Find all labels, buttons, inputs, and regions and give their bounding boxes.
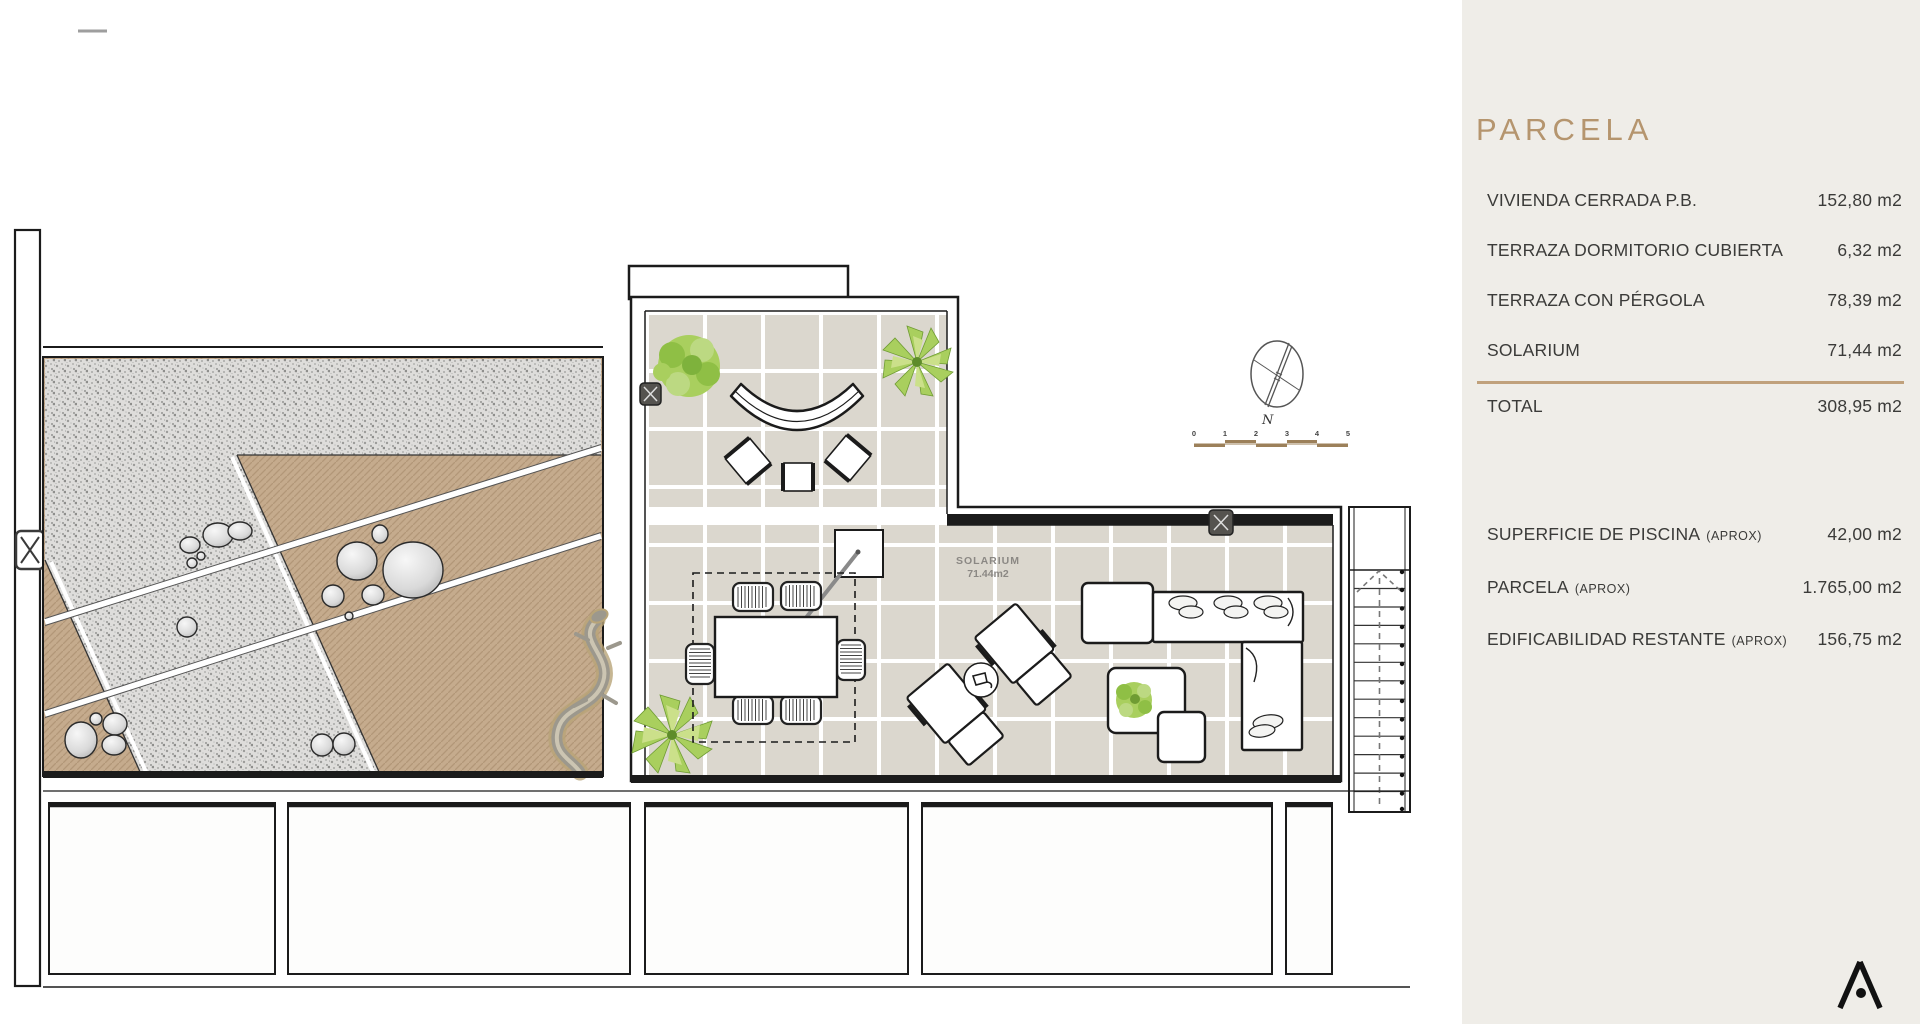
scale-tick-label: 2 [1254,429,1258,438]
dining-chair [781,582,821,610]
scale-tick-label: 4 [1315,429,1320,438]
dining-chair [837,640,865,680]
solarium-area-label: 71.44m2 [967,568,1009,580]
north-label: N [1261,413,1274,428]
panel-title: PARCELA [1476,112,1653,148]
area-row-value: 6,32 m2 [1837,240,1902,261]
aprox-row-label: SUPERFICIE DE PISCINA(APROX) [1487,524,1762,545]
scale-tick-label: 3 [1285,429,1289,438]
side-table-round [964,663,998,697]
aprox-suffix: (APROX) [1732,634,1788,648]
total-row: TOTAL 308,95 m2 [1487,396,1902,417]
pergola-opening [288,803,630,974]
area-row: SOLARIUM 71,44 m2 [1487,340,1902,361]
small-table [1158,712,1205,762]
sofa-plant [1116,682,1152,718]
aprox-row: PARCELA(APROX) 1.765,00 m2 [1487,577,1902,598]
area-row: TERRAZA DORMITORIO CUBIERTA 6,32 m2 [1487,240,1902,261]
aprox-row-label: EDIFICABILIDAD RESTANTE(APROX) [1487,629,1787,650]
floor-plan-drawing: SOLARIUM 71.44m2 [0,0,1462,1024]
brand-logo-icon [1834,952,1890,1014]
scale-bar: 0 1 2 3 4 5 [1192,429,1350,447]
total-label: TOTAL [1487,396,1543,417]
total-value: 308,95 m2 [1818,396,1903,417]
compass-rose: N [1251,341,1303,428]
pergola-band [43,791,1410,987]
parcela-panel: PARCELA VIVIENDA CERRADA P.B. 152,80 m2 … [1462,0,1920,1024]
scale-tick-label: 1 [1223,429,1227,438]
total-divider [1477,381,1904,384]
dining-chair [733,696,773,724]
aprox-row: EDIFICABILIDAD RESTANTE(APROX) 156,75 m2 [1487,629,1902,650]
dining-table [715,617,837,697]
bench-stool-center [783,463,813,491]
dining-chair [733,583,773,611]
area-row: VIVIENDA CERRADA P.B. 152,80 m2 [1487,190,1902,211]
sofa-side-table [1082,583,1153,643]
pergola-opening [49,803,275,974]
scale-tick-label: 5 [1346,429,1350,438]
scale-tick-label: 0 [1192,429,1196,438]
terrace-garden [43,347,620,778]
area-row-label: SOLARIUM [1487,340,1580,361]
aprox-suffix: (APROX) [1706,529,1762,543]
area-row-value: 71,44 m2 [1827,340,1902,361]
pergola-opening [1286,803,1332,974]
roof-bulkhead [629,266,848,299]
solarium-label: SOLARIUM [956,555,1020,567]
aprox-suffix: (APROX) [1575,582,1631,596]
area-row-label: VIVIENDA CERRADA P.B. [1487,190,1697,211]
aprox-row-value: 42,00 m2 [1827,524,1902,545]
aprox-row-value: 1.765,00 m2 [1803,577,1903,598]
pergola-opening [922,803,1272,974]
area-row-label: TERRAZA DORMITORIO CUBIERTA [1487,240,1783,261]
aprox-row-label: PARCELA(APROX) [1487,577,1630,598]
solarium: SOLARIUM 71.44m2 [629,266,1341,783]
compass-needle [1265,343,1289,405]
wall-marker-right [1209,510,1233,535]
brochure-page: { "sidebar": { "title": "PARCELA", "parc… [0,0,1920,1024]
left-boundary-wall [15,230,44,986]
pergola-opening [645,803,908,974]
dining-chair [686,644,714,684]
floor-plan-area: SOLARIUM 71.44m2 [0,0,1462,1024]
staircase [1349,507,1410,812]
aprox-row: SUPERFICIE DE PISCINA(APROX) 42,00 m2 [1487,524,1902,545]
step-wall [947,514,1333,525]
area-row-value: 78,39 m2 [1827,290,1902,311]
aprox-row-value: 156,75 m2 [1818,629,1903,650]
area-row-label: TERRAZA CON PÉRGOLA [1487,290,1705,311]
dining-chair [781,696,821,724]
area-row-value: 152,80 m2 [1818,190,1903,211]
wall-marker-left [640,383,661,405]
area-row: TERRAZA CON PÉRGOLA 78,39 m2 [1487,290,1902,311]
